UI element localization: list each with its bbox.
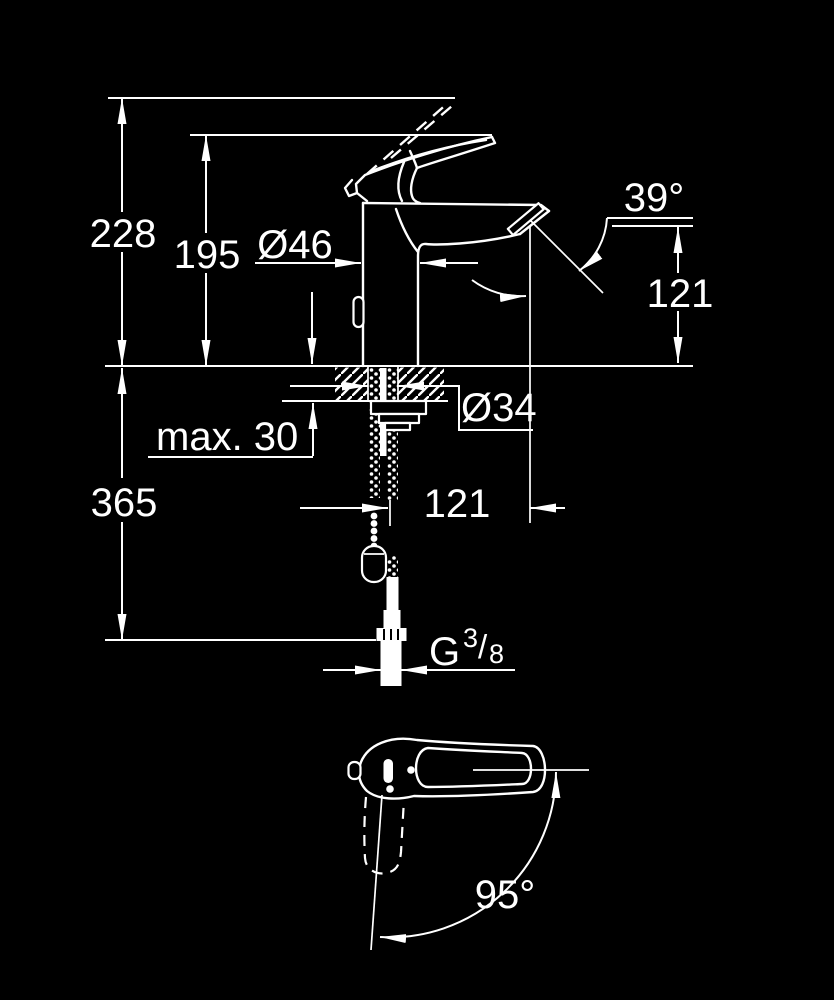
cartridge-slot-mark [384,759,394,783]
technical-drawing-canvas: 228 195 Ø46 39° 121 max. 30 365 [0,0,834,1000]
counter-hatch-right [398,368,444,401]
thread-slash-label: / [478,628,488,665]
dim-hole-diameter-label: Ø34 [461,386,537,430]
top-view-side-button [349,762,361,779]
dim-swivel-angle-label: 95° [475,873,536,917]
fixing-stud-left [369,368,380,498]
dim-spout-angle-label: 39° [624,176,685,220]
dim-overall-height-label: 228 [90,212,157,256]
ball-chain [371,513,378,550]
mounting-washer [371,401,426,414]
thread-letter-label: G [429,630,460,674]
dim-install-depth-label: 365 [91,481,158,525]
thread-denominator-label: 8 [489,639,504,669]
dim-lever-height-label: 195 [174,233,241,277]
hose-threaded-section [387,556,398,577]
dim-counter-thickness-label: max. 30 [156,415,298,459]
fixing-stud-right [387,368,398,500]
mounting-nut [379,414,419,423]
hose-tube-upper [387,577,399,610]
top-view-dot-right [407,766,415,774]
thread-numerator-label: 3 [463,623,478,653]
counter-hatch-left [335,368,368,401]
drawing-area: 228 195 Ø46 39° 121 max. 30 365 [0,0,834,1000]
dim-outlet-height-label: 121 [647,272,714,316]
hose-tube-lower [381,641,402,686]
dim-body-diameter-label: Ø46 [257,223,333,267]
body-side-button [354,297,364,327]
hose-fitting [384,610,401,628]
dim-spout-projection-label: 121 [424,482,491,526]
top-view-dot-lower [386,785,394,793]
mounting-nut-step [385,423,410,430]
pull-knob [362,546,386,582]
